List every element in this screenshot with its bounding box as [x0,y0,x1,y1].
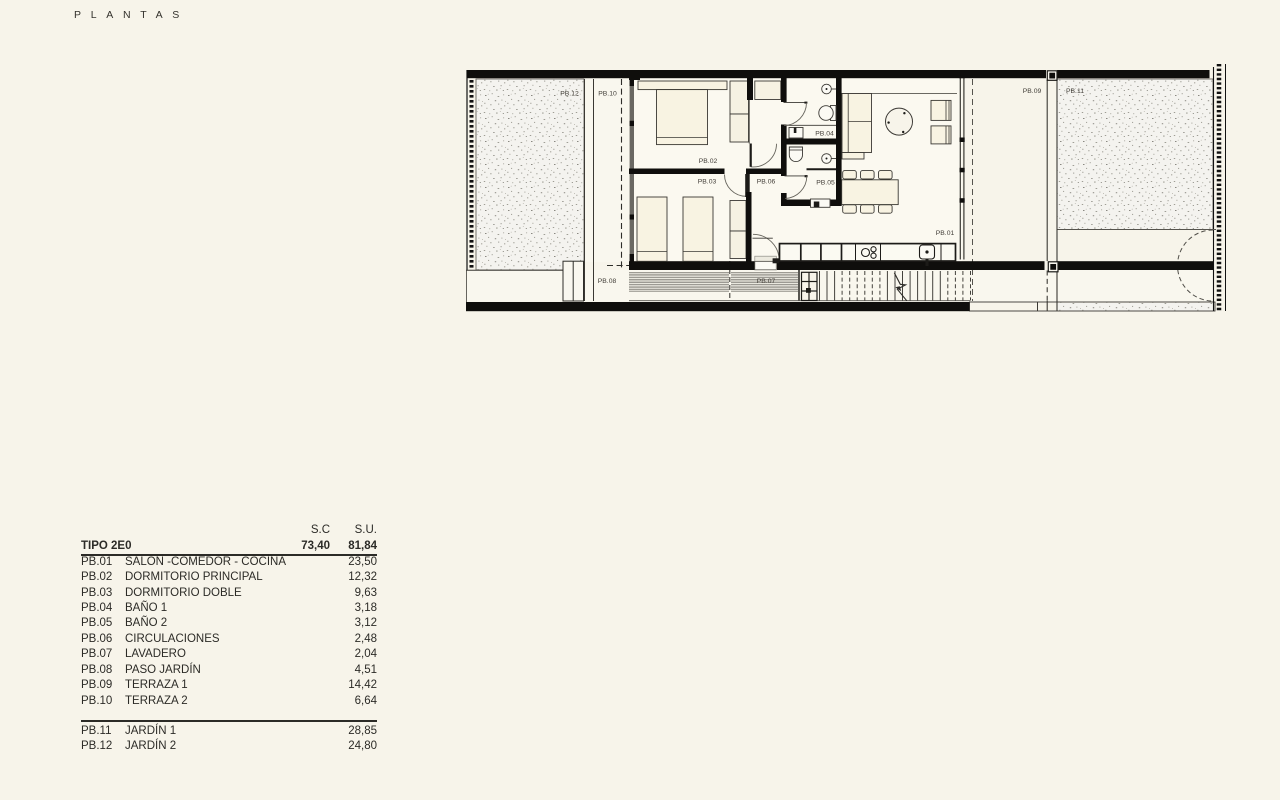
svg-text:PB.02: PB.02 [699,158,718,165]
svg-text:PB.05: PB.05 [816,180,835,187]
svg-text:PB.06: PB.06 [757,179,776,186]
svg-text:PB.08: PB.08 [598,278,617,285]
svg-text:PB.09: PB.09 [1023,88,1042,95]
svg-text:PB.12: PB.12 [560,90,579,97]
svg-text:PB.04: PB.04 [815,131,834,138]
svg-text:PB.01: PB.01 [936,230,955,237]
svg-text:PB.10: PB.10 [598,90,617,97]
svg-text:PB.07: PB.07 [757,278,776,285]
svg-text:PB.11: PB.11 [1066,88,1084,95]
svg-text:PB.03: PB.03 [698,179,717,186]
